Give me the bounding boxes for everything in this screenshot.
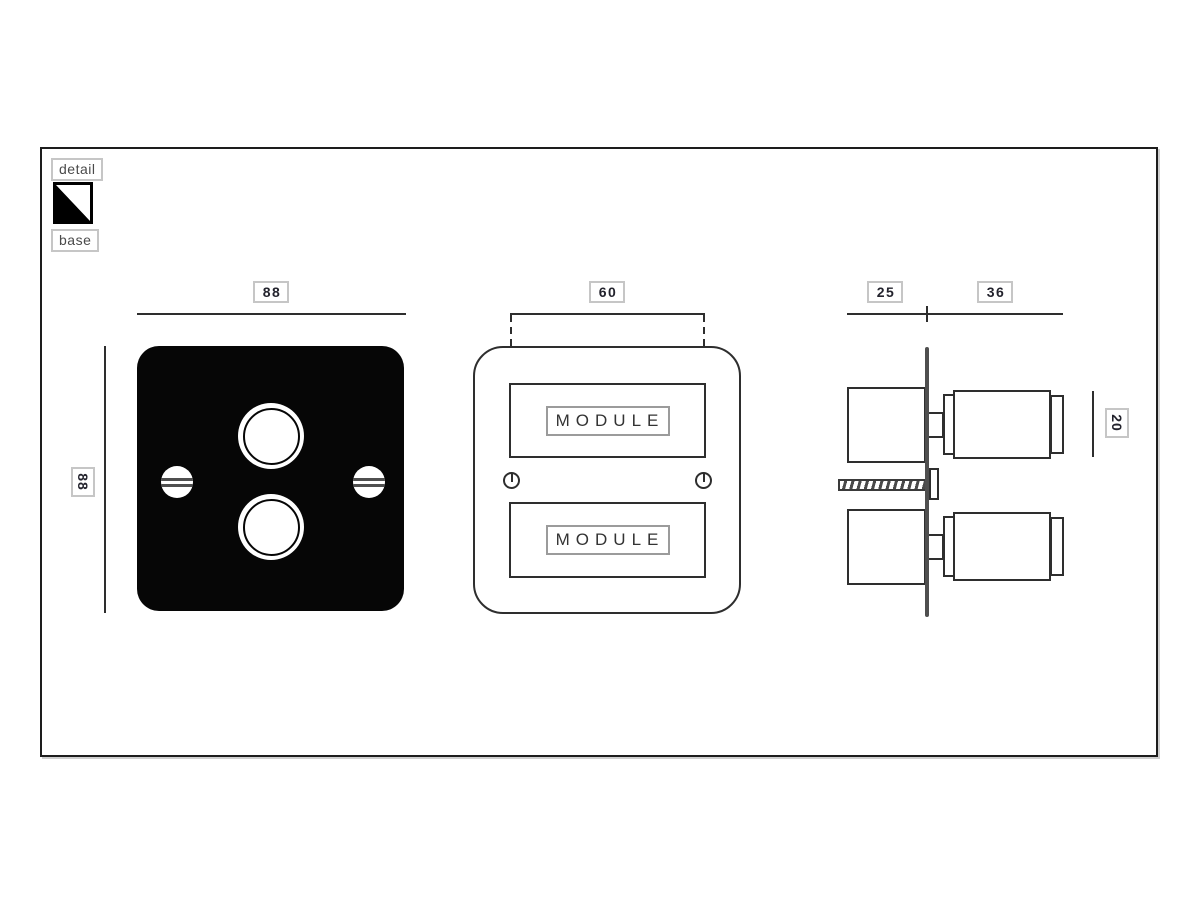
module-width-dim-label: 60 — [589, 281, 625, 303]
side-knob-dim-label: 20 — [1105, 408, 1129, 438]
screw-slot — [353, 478, 385, 481]
side-knob-dim-text: 20 — [1109, 414, 1125, 432]
front-knob-top-ring — [243, 408, 300, 465]
side-backbox-top — [847, 387, 926, 463]
module-label-top: MODULE — [546, 406, 670, 436]
module-width-dim-line — [510, 313, 705, 315]
front-width-dim-label: 88 — [253, 281, 289, 303]
side-knob-top-body — [953, 390, 1051, 459]
front-knob-bottom-ring — [243, 499, 300, 556]
side-backbox-bottom — [847, 509, 926, 585]
front-screw-right-icon — [353, 466, 385, 498]
module-slot-top: MODULE — [509, 383, 706, 458]
side-knob-top-stem — [927, 412, 944, 438]
side-depth-behind-label: 25 — [867, 281, 903, 303]
front-screw-left-icon — [161, 466, 193, 498]
side-depth-dim-tick — [926, 306, 928, 322]
side-knob-bottom-body — [953, 512, 1051, 581]
side-knob-bottom-cap — [1050, 517, 1064, 576]
side-knob-bottom-stem — [927, 534, 944, 560]
screw-slot — [353, 484, 385, 487]
screw-slot — [703, 473, 705, 482]
drawing-canvas: detail base 88 88 60 MODULE MODULE 25 36 — [0, 0, 1200, 900]
side-threaded-rod-icon — [838, 479, 927, 491]
front-height-dim-text: 88 — [75, 473, 91, 491]
screw-slot — [511, 473, 513, 482]
finish-swatch-icon — [53, 182, 93, 224]
side-depth-front-label: 36 — [977, 281, 1013, 303]
front-height-dim-line — [104, 346, 106, 613]
side-knob-top-cap — [1050, 395, 1064, 454]
module-label-bottom: MODULE — [546, 525, 670, 555]
module-screw-hole-right-icon — [695, 472, 712, 489]
front-width-dim-line — [137, 313, 406, 315]
module-slot-bottom: MODULE — [509, 502, 706, 578]
module-screw-hole-left-icon — [503, 472, 520, 489]
legend-detail-label: detail — [51, 158, 103, 181]
side-knob-dim-line — [1092, 391, 1094, 457]
screw-slot — [161, 484, 193, 487]
screw-slot — [161, 478, 193, 481]
side-screw-head — [929, 468, 939, 500]
front-height-dim-label: 88 — [71, 467, 95, 497]
side-depth-dim-line — [847, 313, 1063, 315]
front-knob-bottom — [238, 494, 304, 560]
front-knob-top — [238, 403, 304, 469]
legend-base-label: base — [51, 229, 99, 252]
